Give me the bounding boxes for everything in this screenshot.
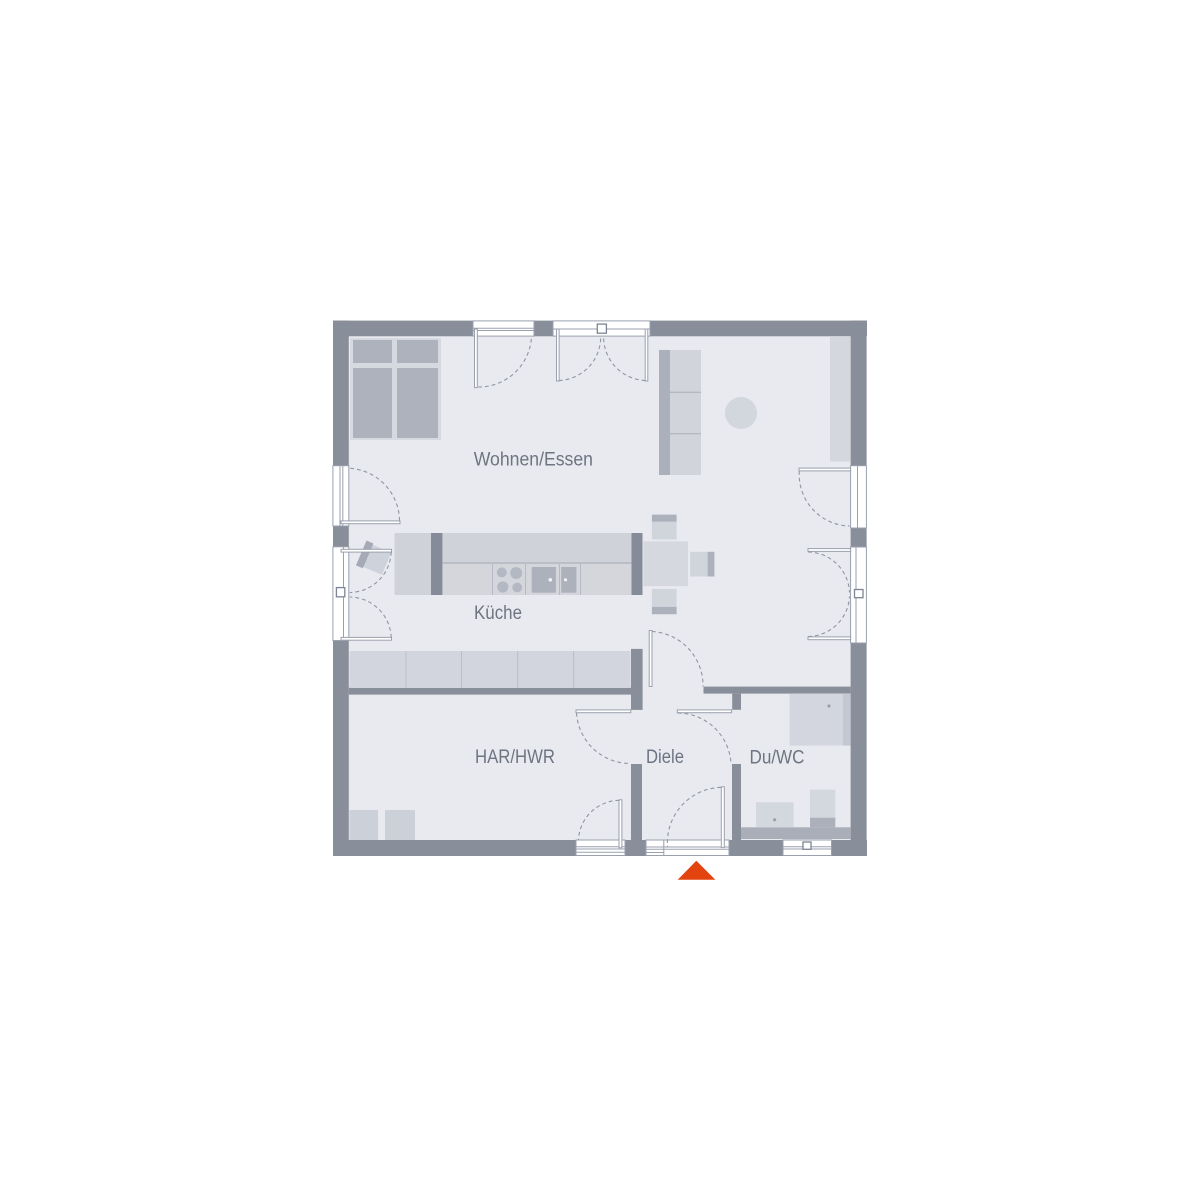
svg-text:Wohnen/Essen: Wohnen/Essen bbox=[474, 449, 593, 471]
svg-text:Diele: Diele bbox=[646, 746, 684, 768]
svg-text:Du/WC: Du/WC bbox=[750, 747, 805, 769]
svg-text:HAR/HWR: HAR/HWR bbox=[475, 746, 555, 768]
svg-text:Küche: Küche bbox=[474, 602, 522, 624]
